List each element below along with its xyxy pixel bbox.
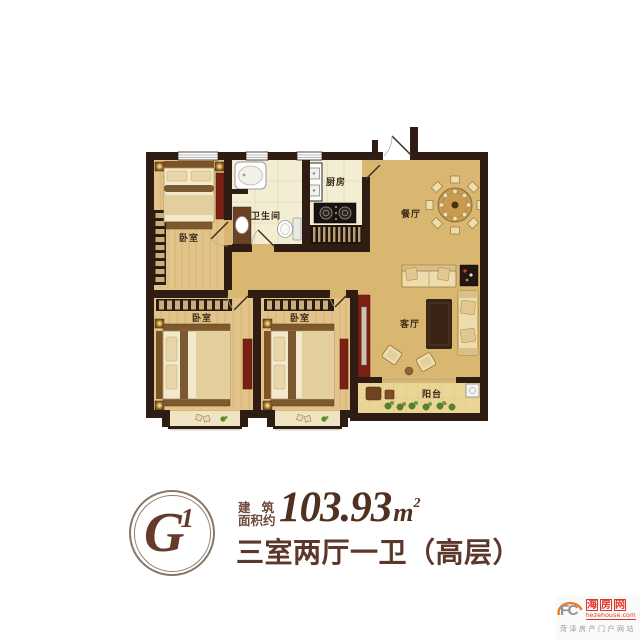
fc-logo-icon: FC: [556, 596, 584, 622]
area-label: 建 筑 面积约: [238, 502, 278, 528]
site-name: 海 房 网: [586, 599, 636, 611]
room-label-bathroom: 卫生间: [251, 210, 281, 221]
site-name-char3: 网: [614, 599, 626, 611]
room-label-balcony: 阳台: [422, 388, 442, 399]
room-label-bedroom-top: 卧室: [179, 232, 199, 243]
site-tagline: 菏泽房产门户网站: [556, 624, 640, 634]
unit-code-sup: 1: [180, 503, 194, 534]
room-label-dining: 餐厅: [400, 208, 421, 219]
layout-description: 三室两厅一卫（高层）: [236, 531, 521, 571]
site-name-char2: 房: [600, 599, 612, 611]
room-label-bedroom-left: 卧室: [192, 312, 212, 323]
floor-plan: 卧室 卫生间 厨房 餐厅 客厅 卧室 卧室 阳台: [140, 115, 495, 445]
site-name-char1: 海: [586, 599, 598, 611]
area-label-line2: 面积约: [238, 515, 278, 528]
svg-text:FC: FC: [560, 602, 579, 619]
area-number: 103.93: [279, 486, 391, 529]
unit-type-logo: G1: [129, 490, 215, 576]
room-label-kitchen: 厨房: [326, 176, 346, 187]
page-background: 卧室 卫生间 厨房 餐厅 客厅 卧室 卧室 阳台 G1 建 筑 面积约 103.…: [0, 0, 640, 640]
room-label-bedroom-mid: 卧室: [290, 312, 310, 323]
area-unit-sup: 2: [413, 497, 420, 511]
site-watermark: FC 海 房 网 hezehouse.com 菏泽房产门户网站: [556, 596, 640, 640]
site-domain: hezehouse.com: [586, 612, 636, 620]
unit-code: G: [144, 505, 184, 561]
area-value: 103.93 m 2: [279, 486, 420, 529]
area-unit: m: [393, 500, 413, 526]
room-label-living: 客厅: [399, 318, 420, 329]
